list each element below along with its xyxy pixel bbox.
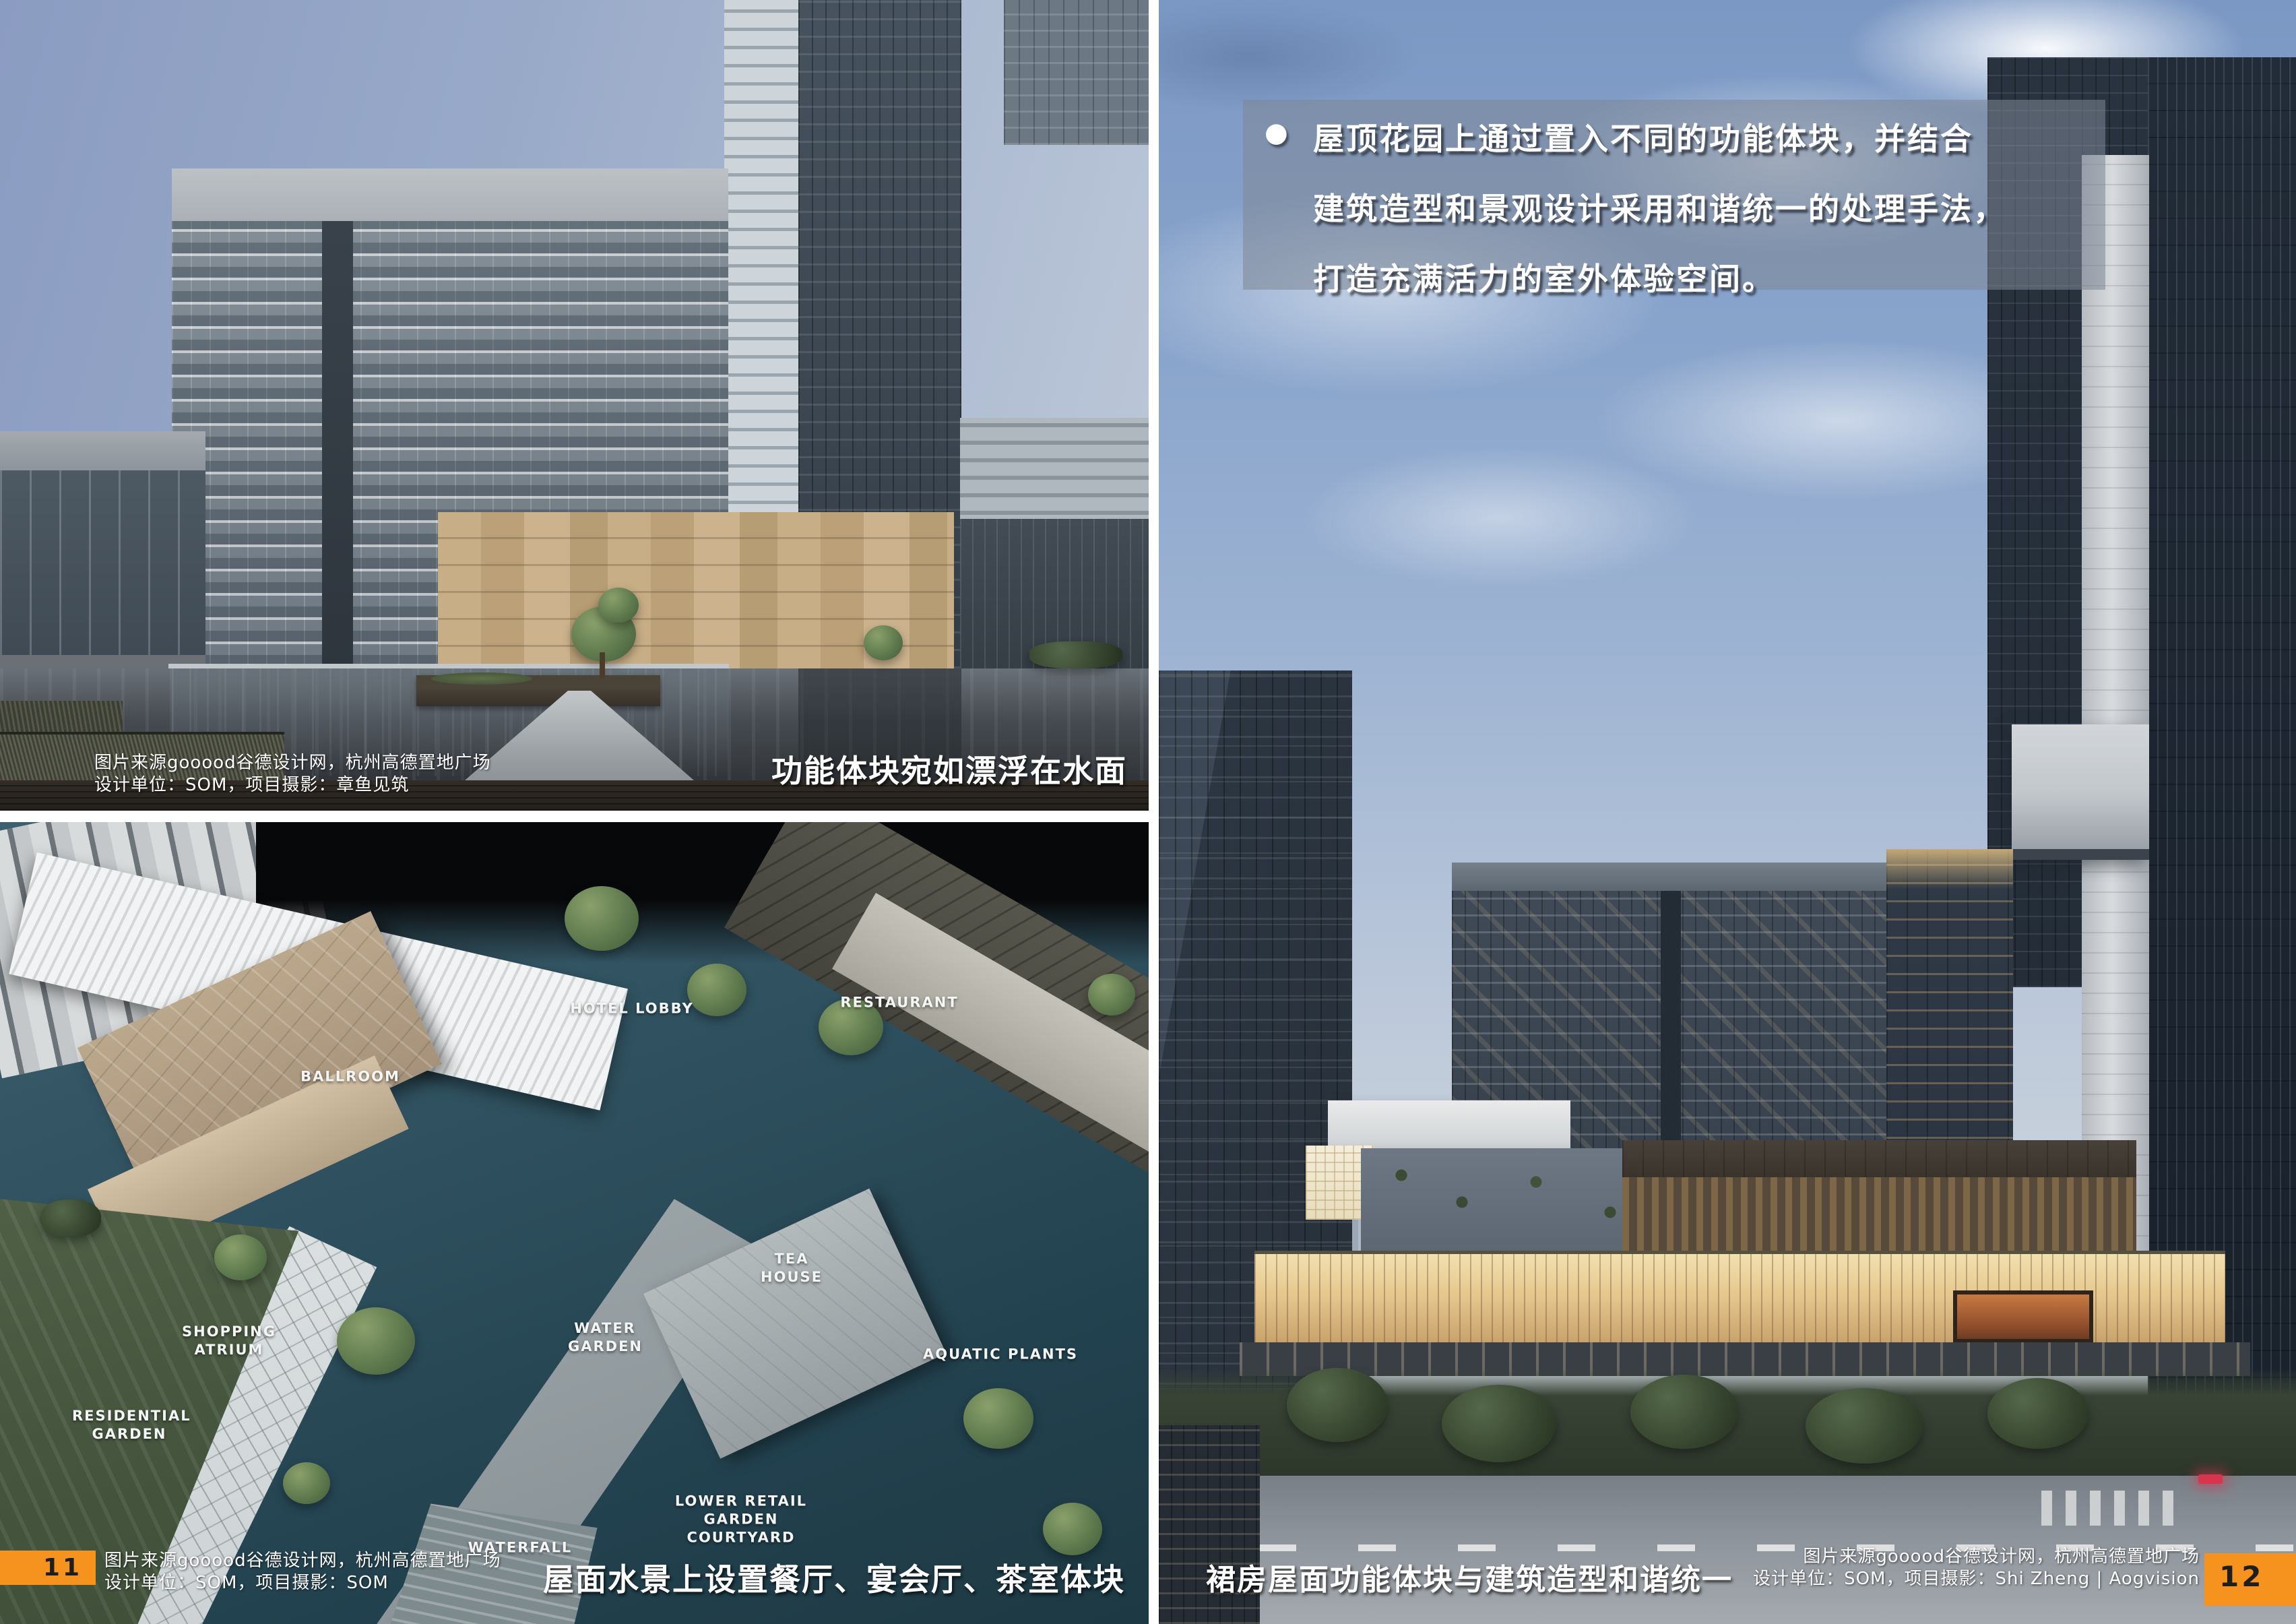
tree <box>598 588 639 623</box>
tree-trunk <box>600 652 605 678</box>
tree <box>337 1307 415 1375</box>
mega-tower-main <box>2148 57 2296 1432</box>
overlay-text-line: 屋顶花园上通过置入不同的功能体块，并结合 <box>1313 115 1973 159</box>
crosswalk <box>2041 1491 2176 1526</box>
main-building-slot <box>322 221 353 668</box>
photo-dusk-towers: ● 屋顶花园上通过置入不同的功能体块，并结合 建筑造型和景观设计采用和谐统一的处… <box>1159 0 2296 1624</box>
left-pavilion-glass <box>0 470 205 655</box>
tree <box>864 625 903 660</box>
tree <box>283 1462 330 1504</box>
label-restaurant: RESTAURANT <box>840 994 958 1012</box>
corner-building <box>1004 0 1149 145</box>
street-tree <box>1987 1378 2088 1449</box>
credit-line: 图片来源gooood谷德设计网，杭州高德置地广场 <box>94 752 491 774</box>
credit-line: 设计单位：SOM，项目摄影：章鱼见筑 <box>94 774 491 797</box>
page-number-right: 12 <box>2204 1553 2296 1606</box>
main-building-parapet <box>172 168 728 221</box>
cantilever-skybox <box>2012 724 2149 860</box>
photo-pool-plaza: 图片来源gooood谷德设计网，杭州高德置地广场 设计单位：SOM，项目摄影：章… <box>0 0 1149 811</box>
label-ballroom: BALLROOM <box>300 1068 400 1086</box>
label-lower-retail-garden-courtyard: LOWER RETAIL GARDEN COURTYARD <box>657 1493 825 1547</box>
mid-rise-parapet <box>1452 863 1886 891</box>
label-hotel-lobby: HOTEL LOBBY <box>570 1000 693 1018</box>
overlay-text-line: 建筑造型和景观设计采用和谐统一的处理手法， <box>1313 185 2006 229</box>
presentation-page: 图片来源gooood谷德设计网，杭州高德置地广场 设计单位：SOM，项目摄影：章… <box>0 0 2296 1624</box>
photo-caption-title: 裙房屋面功能体块与建筑造型和谐统一 <box>1206 1555 1733 1598</box>
tree <box>1088 974 1135 1016</box>
white-tower <box>724 0 802 519</box>
bronze-hall-facade <box>1622 1177 2136 1251</box>
left-pavilion-roof <box>0 431 205 470</box>
text-overlay-box: ● 屋顶花园上通过置入不同的功能体块，并结合 建筑造型和景观设计采用和谐统一的处… <box>1243 100 2105 290</box>
tree <box>963 1388 1033 1449</box>
red-sign-light <box>2198 1474 2223 1484</box>
photo-credit: 图片来源gooood谷德设计网，杭州高德置地广场 设计单位：SOM，项目摄影：章… <box>94 752 491 797</box>
tree <box>687 964 746 1016</box>
credit-line: 设计单位：SOM，项目摄影：SOM <box>104 1572 501 1594</box>
label-tea-house: TEA HOUSE <box>761 1250 823 1286</box>
credit-line: 图片来源gooood谷德设计网，杭州高德置地广场 <box>104 1550 501 1572</box>
photo-credit: 图片来源gooood谷德设计网，杭州高德置地广场 设计单位：SOM，项目摄影：S… <box>104 1550 501 1594</box>
overlay-text-line: 打造充满活力的室外体验空间。 <box>1313 255 1775 299</box>
photo-caption-title: 功能体块宛如漂浮在水面 <box>771 747 1127 791</box>
planter-greenery <box>431 673 532 685</box>
street-tree <box>1442 1385 1556 1462</box>
label-shopping-atrium: SHOPPING ATRIUM <box>182 1323 276 1359</box>
shrub <box>40 1199 101 1237</box>
tree <box>1043 1503 1102 1555</box>
street-tree <box>1287 1368 1388 1442</box>
tree <box>565 886 639 951</box>
photo-caption-title: 屋面水景上设置餐厅、宴会厅、茶室体块 <box>543 1555 1125 1600</box>
credit-line: 图片来源gooood谷德设计网，杭州高德置地广场 <box>1753 1546 2200 1568</box>
label-residential-garden: RESIDENTIAL GARDEN <box>72 1407 187 1443</box>
bronze-hall-roof <box>1622 1140 2136 1177</box>
street-tree <box>1630 1375 1738 1449</box>
wing-glow <box>1886 849 2013 889</box>
bullet-icon: ● <box>1265 117 1288 148</box>
tree <box>214 1235 267 1280</box>
credit-line: 设计单位：SOM，项目摄影：Shi Zheng | Aogvision <box>1753 1568 2200 1590</box>
label-aquatic-plants: AQUATIC PLANTS <box>923 1346 1078 1364</box>
label-water-garden: WATER GARDEN <box>568 1319 642 1356</box>
street-tree <box>1806 1388 1923 1464</box>
photo-roof-garden-render: HOTEL LOBBY RESTAURANT BALLROOM TEA HOUS… <box>0 822 1149 1624</box>
billboard <box>1953 1290 2093 1343</box>
photo-credit: 图片来源gooood谷德设计网，杭州高德置地广场 设计单位：SOM，项目摄影：S… <box>1753 1546 2200 1590</box>
hedge <box>1029 642 1122 668</box>
page-number-left: 11 <box>0 1551 96 1585</box>
grass-planter <box>0 701 123 733</box>
